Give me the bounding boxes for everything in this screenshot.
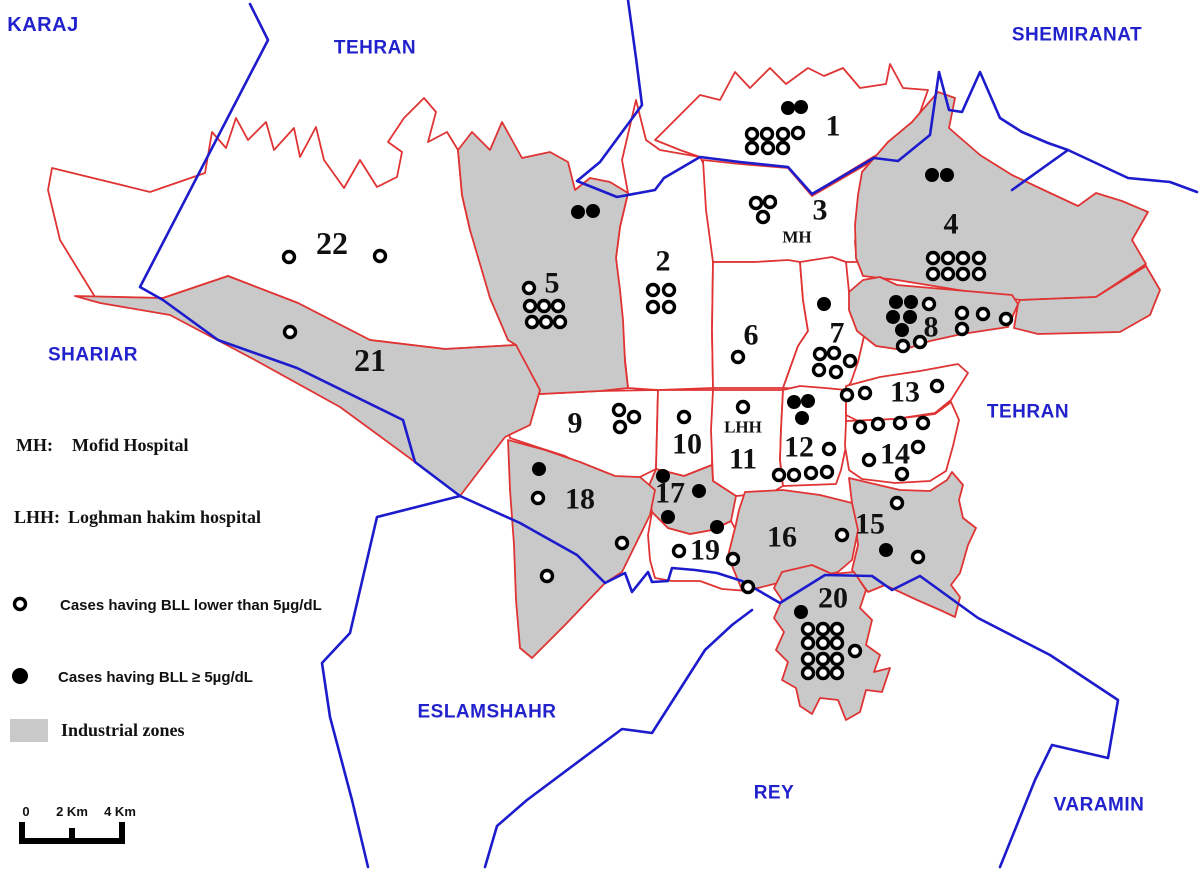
case-high-marker — [656, 469, 670, 483]
case-low-marker — [285, 327, 296, 338]
case-high-marker — [787, 395, 801, 409]
case-high-marker — [571, 205, 585, 219]
case-high-marker — [801, 394, 815, 408]
case-low-marker — [837, 530, 848, 541]
case-low-marker — [738, 402, 749, 413]
case-low-marker — [958, 269, 969, 280]
industrial-zones-legend-label: Industrial zones — [61, 720, 185, 740]
region-label-rey: REY — [754, 783, 795, 804]
region-label-varamin: VARAMIN — [1054, 795, 1145, 816]
tehran-districts-bll-map: 123MH4567891011LHH1213141516171819202122… — [0, 0, 1200, 869]
case-low-marker — [932, 381, 943, 392]
case-low-marker — [974, 269, 985, 280]
scale-label-4km: 4 Km — [104, 804, 136, 819]
districts-layer — [48, 64, 1160, 720]
case-low-marker — [957, 324, 968, 335]
region-label-tehran: TEHRAN — [334, 38, 416, 59]
region-label-shemiranat: SHEMIRANAT — [1012, 25, 1142, 46]
case-high-marker — [895, 323, 909, 337]
case-low-marker — [832, 654, 843, 665]
case-low-marker — [814, 365, 825, 376]
case-low-marker — [855, 422, 866, 433]
case-low-marker — [864, 455, 875, 466]
case-low-marker — [803, 638, 814, 649]
region-boundary-line — [322, 496, 460, 867]
case-low-marker — [615, 422, 626, 433]
case-low-marker — [375, 251, 386, 262]
case-low-marker — [617, 538, 628, 549]
case-low-marker — [674, 546, 685, 557]
case-low-marker — [822, 467, 833, 478]
case-high-marker — [794, 605, 808, 619]
case-low-marker — [765, 197, 776, 208]
lhh-abbr-label: LHH: — [14, 507, 60, 527]
case-high-marker — [661, 510, 675, 524]
scale-label-2km: 2 Km — [56, 804, 88, 819]
case-low-marker — [958, 253, 969, 264]
case-low-marker — [957, 308, 968, 319]
case-high-marker — [903, 310, 917, 324]
case-low-marker — [664, 302, 675, 313]
case-low-marker — [758, 212, 769, 223]
case-low-marker — [778, 129, 789, 140]
case-low-marker — [747, 143, 758, 154]
case-low-marker — [842, 390, 853, 401]
case-low-marker — [974, 253, 985, 264]
case-low-marker — [818, 624, 829, 635]
mh-name-label: Mofid Hospital — [72, 435, 189, 455]
case-low-marker — [762, 129, 773, 140]
case-low-marker — [728, 554, 739, 565]
region-label-shariar: SHARIAR — [48, 345, 138, 366]
case-high-marker — [879, 543, 893, 557]
case-high-marker — [532, 462, 546, 476]
case-high-marker — [710, 520, 724, 534]
case-high-marker — [692, 484, 706, 498]
case-high-marker — [940, 168, 954, 182]
region-label-karaj: KARAJ — [7, 14, 78, 36]
case-low-marker — [284, 252, 295, 263]
case-low-marker — [743, 582, 754, 593]
case-low-marker — [614, 405, 625, 416]
case-low-marker — [892, 498, 903, 509]
case-low-marker — [747, 129, 758, 140]
case-high-marker — [889, 295, 903, 309]
case-low-marker — [803, 668, 814, 679]
case-low-marker — [815, 349, 826, 360]
case-low-marker — [525, 301, 536, 312]
district-10-shape — [656, 390, 713, 476]
case-low-marker — [831, 367, 842, 378]
case-high-marker — [817, 297, 831, 311]
case-low-marker — [774, 470, 785, 481]
case-low-marker — [803, 654, 814, 665]
case-low-marker — [629, 412, 640, 423]
case-low-marker — [664, 285, 675, 296]
region-boundary-line — [1068, 150, 1197, 192]
case-low-marker — [832, 668, 843, 679]
case-low-marker — [832, 624, 843, 635]
case-low-marker — [860, 388, 871, 399]
case-low-marker — [542, 571, 553, 582]
bll-high-legend-label: Cases having BLL ≥ 5µg/dL — [58, 669, 253, 686]
case-low-marker — [928, 253, 939, 264]
case-low-marker — [553, 301, 564, 312]
case-low-marker — [897, 469, 908, 480]
case-low-marker — [832, 638, 843, 649]
case-low-marker — [539, 301, 550, 312]
case-low-marker — [789, 470, 800, 481]
case-high-marker — [886, 310, 900, 324]
case-low-marker — [928, 269, 939, 280]
case-low-marker — [913, 442, 924, 453]
case-low-marker — [1001, 314, 1012, 325]
case-low-marker — [818, 638, 829, 649]
case-low-marker — [918, 418, 929, 429]
case-low-marker — [524, 283, 535, 294]
case-low-marker — [845, 356, 856, 367]
case-low-marker — [648, 285, 659, 296]
lhh-name-label: Loghman hakim hospital — [68, 507, 261, 527]
bll-low-legend-label: Cases having BLL lower than 5µg/dL — [60, 597, 322, 614]
region-label-eslamshahr: ESLAMSHAHR — [417, 702, 556, 723]
scale-bar: 0 2 Km 4 Km — [22, 804, 136, 841]
industrial-zone-legend-swatch — [10, 719, 48, 742]
case-low-marker — [679, 412, 690, 423]
case-low-marker — [806, 468, 817, 479]
case-low-marker — [778, 143, 789, 154]
case-low-marker — [829, 348, 840, 359]
mh-abbr-label: MH: — [16, 435, 53, 455]
case-high-marker — [925, 168, 939, 182]
open-circle-legend-icon — [15, 599, 26, 610]
case-low-marker — [924, 299, 935, 310]
region-label-tehran: TEHRAN — [987, 402, 1069, 423]
case-low-marker — [943, 253, 954, 264]
case-low-marker — [751, 198, 762, 209]
case-low-marker — [898, 341, 909, 352]
case-low-marker — [793, 128, 804, 139]
district-15-shape — [849, 472, 976, 617]
case-low-marker — [541, 317, 552, 328]
case-low-marker — [873, 419, 884, 430]
legend: MH: Mofid Hospital LHH: Loghman hakim ho… — [10, 435, 322, 841]
case-low-marker — [824, 444, 835, 455]
case-low-marker — [555, 317, 566, 328]
case-low-marker — [818, 654, 829, 665]
case-low-marker — [943, 269, 954, 280]
case-high-marker — [904, 295, 918, 309]
scale-label-0: 0 — [22, 804, 29, 819]
case-high-marker — [781, 101, 795, 115]
case-low-marker — [533, 493, 544, 504]
case-low-marker — [913, 552, 924, 563]
case-high-marker — [586, 204, 600, 218]
filled-circle-legend-icon — [12, 668, 28, 684]
case-low-marker — [850, 646, 861, 657]
case-high-marker — [795, 411, 809, 425]
case-low-marker — [733, 352, 744, 363]
scale-bar-bracket — [22, 822, 122, 841]
case-low-marker — [978, 309, 989, 320]
case-low-marker — [895, 418, 906, 429]
case-low-marker — [803, 624, 814, 635]
case-low-marker — [818, 668, 829, 679]
case-low-marker — [648, 302, 659, 313]
case-low-marker — [915, 337, 926, 348]
case-low-marker — [527, 317, 538, 328]
case-high-marker — [794, 100, 808, 114]
case-low-marker — [763, 143, 774, 154]
